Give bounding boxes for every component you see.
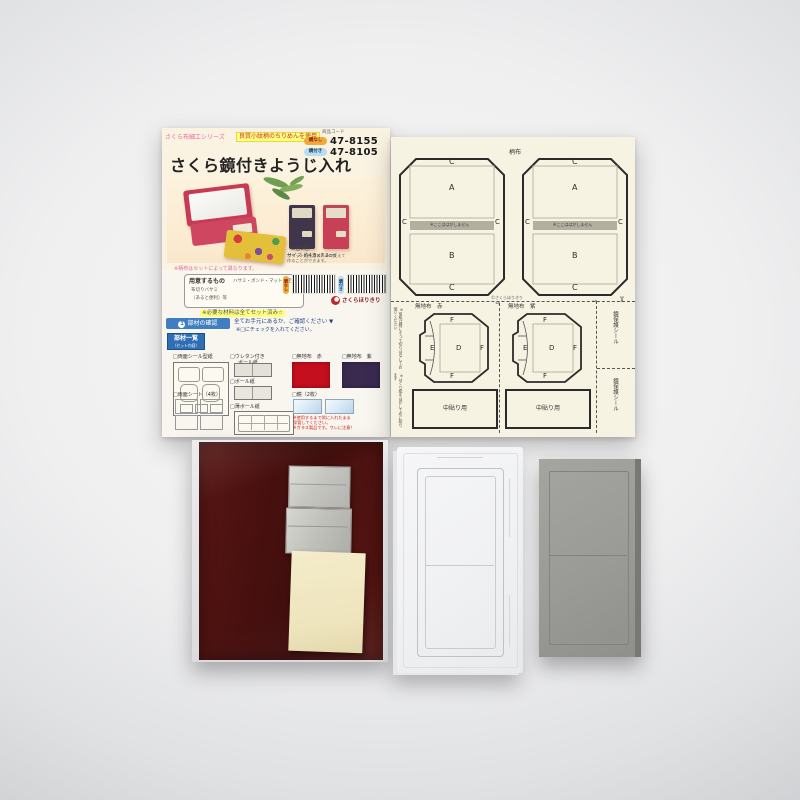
- def-letter-e: E: [523, 344, 527, 352]
- panel-letter-c-right: C: [495, 218, 500, 226]
- product-photo: ポケットの位置は好みで変えて 作ることができます。: [167, 177, 385, 263]
- white-cardboard-stack: [397, 447, 523, 673]
- thin-board-diagram: [234, 411, 294, 435]
- red-fabric-swatch: [292, 362, 330, 388]
- mirror: [188, 188, 247, 222]
- cut-line-vertical-mid: [499, 303, 500, 433]
- panel-letter-b: B: [449, 251, 455, 260]
- pattern-note-vertical-2: ※はくり紙をはがして布に貼ります: [394, 373, 404, 431]
- barcode-badge-2: 鏡付き: [338, 276, 344, 294]
- panel-letter-a: A: [572, 183, 577, 192]
- product-code-1: 47-8155: [330, 136, 378, 147]
- part-label-seal-template: □両面シール型紙: [173, 354, 213, 360]
- panel-letter-b: B: [572, 251, 578, 260]
- instruction-sheet: さくら布細工シリーズ 良質小紋柄のちりめんを使用 商品コード 鏡なし 47-81…: [162, 128, 390, 437]
- cream-paper-pad: [288, 551, 365, 654]
- part-label-plain-purple: □無地布 紫: [342, 354, 372, 360]
- center-paste-label: 中貼り用: [443, 405, 467, 412]
- parts-list-badge: 部材一覧 （セット内容）: [167, 333, 205, 350]
- scissors-icon: ✂: [617, 296, 626, 303]
- scissors-icon: ✂: [592, 297, 597, 304]
- panel-letter-c-bottom: C: [449, 283, 455, 292]
- step1-number: 1: [178, 321, 185, 328]
- sakura-horikiri-logo-icon: [331, 296, 340, 305]
- mirror-note-line3: ※ガラス製品です。ワレに注意！: [293, 425, 355, 430]
- def-letter-f-bottom: F: [450, 372, 454, 380]
- photo-backdrop: さくら布細工シリーズ 良質小紋柄のちりめんを使用 商品コード 鏡なし 47-81…: [0, 0, 800, 800]
- mirror-protect-strip-2: 鏡保護シール: [598, 372, 632, 432]
- board-diagram: [234, 386, 272, 400]
- pattern-note-vertical-1: ※型紙は線にそって切りはなしてお使いください: [394, 307, 404, 369]
- strip-note: ※ここははがしません: [553, 222, 592, 227]
- mirror-chip-2: [325, 399, 354, 414]
- prepare-line3: （あると便利）等: [191, 296, 227, 302]
- panel-letter-c-left: C: [402, 218, 407, 226]
- purple-fabric-swatch: [342, 362, 380, 388]
- panel-letter-c-bottom: C: [572, 283, 578, 292]
- part-label-double-sheet: □両面シート（4枚）: [173, 392, 221, 398]
- part-label-mirrors: □鏡（2枚）: [292, 392, 320, 398]
- product-title: さくら鏡付きようじ入れ: [170, 156, 352, 176]
- maroon-fabric-package: [192, 440, 388, 662]
- plain-fabric-purple-label: 無地布 紫: [508, 304, 536, 311]
- def-letter-e: E: [430, 344, 434, 352]
- fabric-caption: ※柄布はセットによって異なります。: [174, 266, 257, 272]
- cut-line-strip-divider: [597, 368, 635, 369]
- pattern-panel-right: C A C ※ここははがしません C B C: [521, 157, 629, 297]
- pattern-sheet: 柄布 C A C ※ここははがしません C B C C: [391, 137, 635, 437]
- step1-subtext: ※□にチェックを入れてください。: [236, 327, 315, 333]
- barcode-badge-1: 鏡なし: [283, 276, 289, 294]
- prepare-label: 用意するもの: [189, 278, 225, 286]
- barcode-1: [292, 274, 336, 294]
- prepare-line2: 布切りバサミ: [191, 288, 218, 294]
- urethane-board-diagram: [234, 363, 272, 377]
- panel-letter-c-top: C: [449, 157, 455, 166]
- panel-letter-c-right: C: [618, 218, 623, 226]
- mirror-protect-label: 鏡保護シール: [611, 378, 619, 428]
- gray-cardboard: [539, 459, 641, 657]
- variant-badge-1: 鏡なし: [304, 137, 327, 145]
- panel-letter-a: A: [449, 183, 454, 192]
- def-panel-right: F E D F F: [509, 312, 583, 384]
- step1-label: 部材の確認: [187, 320, 217, 327]
- patterned-fabric-label: 柄布: [509, 149, 521, 157]
- def-letter-f-bottom: F: [543, 372, 547, 380]
- closed-case-red: [323, 205, 349, 249]
- pattern-panel-left: C A C ※ここははがしません C B C: [398, 157, 506, 297]
- product-code-label: 商品コード: [322, 130, 345, 136]
- variant-badge-2: 鏡付き: [304, 148, 327, 156]
- wrapped-mirrors: [285, 465, 350, 552]
- center-paste-box-left: 中貼り用: [412, 389, 498, 429]
- part-label-board: □ボール紙: [230, 379, 255, 385]
- step1-badge: 1部材の確認: [166, 318, 230, 329]
- brand-name: さくらほりきり: [342, 298, 381, 305]
- strip-note: ※ここははがしません: [430, 222, 469, 227]
- mirror-protect-label: 鏡保護シール: [611, 311, 619, 361]
- def-letter-d: D: [549, 344, 554, 352]
- barcode-2: [347, 274, 387, 294]
- mirror-protect-strip-1: 鏡保護シール: [598, 303, 632, 365]
- panel-letter-c-left: C: [525, 218, 530, 226]
- size-note: サイズ 約4.5×7.2cm: [287, 253, 336, 259]
- set-count: （2個1組）: [287, 246, 313, 252]
- center-paste-box-right: 中貼り用: [505, 389, 591, 429]
- def-letter-f-top: F: [450, 316, 454, 324]
- center-paste-label: 中貼り用: [536, 405, 560, 412]
- series-label: さくら布細工シリーズ: [165, 134, 225, 142]
- def-letter-f-right: F: [480, 344, 484, 352]
- panel-letter-c-top: C: [572, 157, 578, 166]
- def-letter-d: D: [456, 344, 461, 352]
- mirror-chip-1: [293, 399, 322, 414]
- included-note: ※必要な材料は全てセット済み☆: [200, 310, 285, 317]
- floral-case: [224, 229, 287, 264]
- plain-fabric-red-label: 無地布 赤: [415, 304, 443, 311]
- def-letter-f-top: F: [543, 316, 547, 324]
- scissors-icon: ✂: [495, 299, 500, 306]
- parts-list-title: 部材一覧: [168, 334, 204, 343]
- step1-text: 全てお手元にあるか、ご確認ください ▼: [234, 319, 333, 326]
- cut-line-vertical-right: [596, 301, 597, 433]
- closed-case-purple: [289, 205, 315, 249]
- def-panel-left: F E D F F: [416, 312, 490, 384]
- cut-line-horizontal: [391, 301, 635, 302]
- part-label-thin-board: □薄ボール紙: [230, 404, 260, 410]
- part-label-plain-red: □無地布 赤: [292, 354, 322, 360]
- def-letter-f-right: F: [573, 344, 577, 352]
- parts-list-subtitle: （セット内容）: [168, 343, 204, 348]
